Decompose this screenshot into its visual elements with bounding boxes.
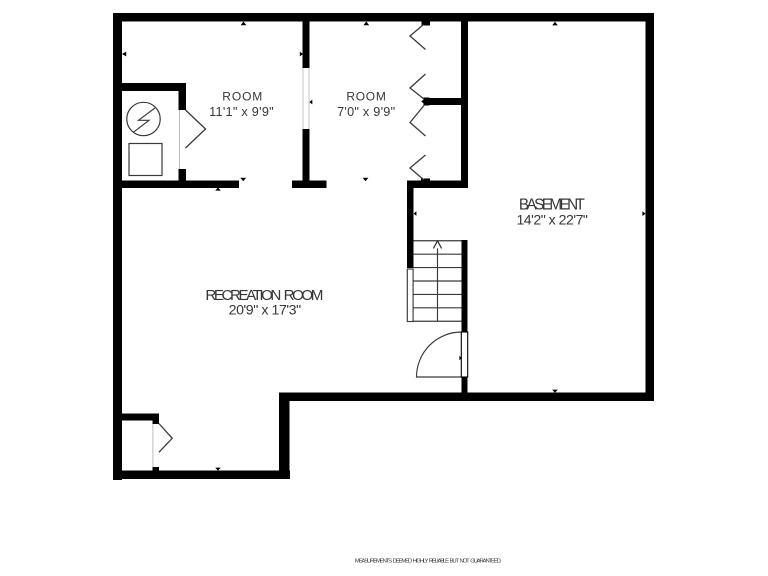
svg-text:MEASUREMENTS DEEMED HIGHLY REL: MEASUREMENTS DEEMED HIGHLY RELIABLE BUT … <box>355 559 502 565</box>
svg-text:7'0" x 9'9": 7'0" x 9'9" <box>337 105 395 119</box>
svg-text:ROOM: ROOM <box>346 90 386 104</box>
svg-text:20'9" x 17'3": 20'9" x 17'3" <box>229 302 302 318</box>
svg-text:11'1" x 9'9": 11'1" x 9'9" <box>209 105 274 119</box>
svg-text:ROOM: ROOM <box>222 90 262 104</box>
svg-text:RECREATION ROOM: RECREATION ROOM <box>205 287 323 304</box>
svg-text:14'2" x 22'7": 14'2" x 22'7" <box>516 212 588 228</box>
